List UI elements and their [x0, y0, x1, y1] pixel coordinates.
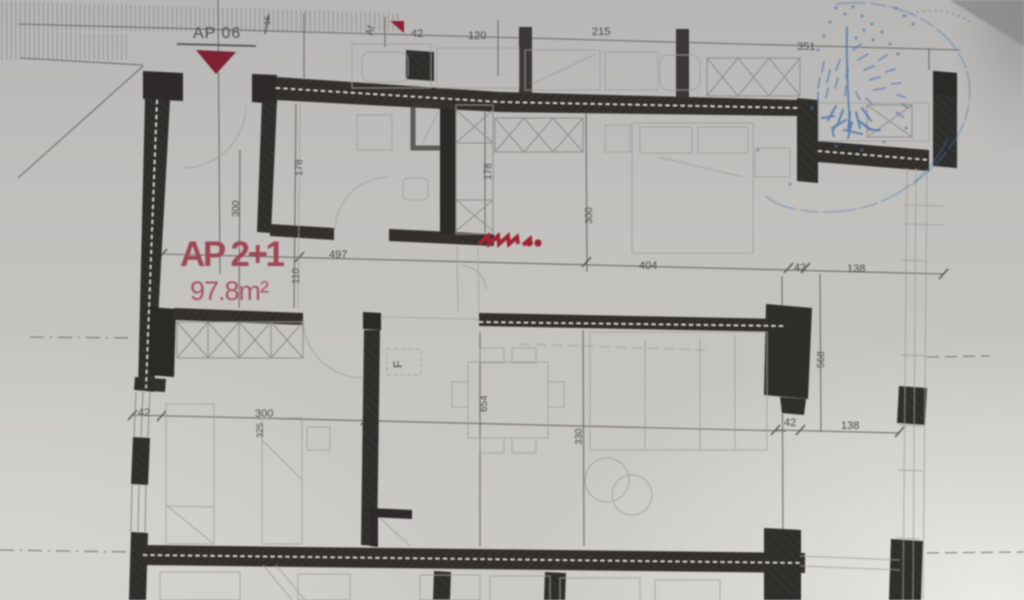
svg-text:138: 138: [847, 263, 865, 275]
svg-text:110: 110: [291, 268, 302, 284]
svg-text:330: 330: [574, 428, 585, 445]
svg-text:16: 16: [263, 16, 272, 25]
svg-text:42: 42: [784, 417, 796, 429]
svg-text:300: 300: [584, 207, 595, 224]
svg-text:568: 568: [816, 351, 827, 368]
svg-text:351: 351: [797, 41, 815, 53]
svg-text:42: 42: [794, 262, 806, 274]
svg-text:178: 178: [483, 163, 494, 180]
svg-text:AP 06: AP 06: [193, 25, 241, 42]
svg-text:215: 215: [592, 26, 610, 38]
svg-text:325: 325: [255, 423, 265, 438]
svg-text:178: 178: [294, 159, 305, 176]
svg-text:300: 300: [231, 200, 242, 217]
svg-text:654: 654: [479, 395, 490, 412]
svg-text:97.8m²: 97.8m²: [190, 276, 269, 306]
svg-text:497: 497: [329, 249, 347, 261]
svg-text:AP 2+1: AP 2+1: [180, 235, 285, 274]
svg-text:404: 404: [639, 260, 657, 272]
svg-text:F: F: [391, 361, 405, 368]
svg-text:138: 138: [841, 420, 859, 432]
svg-text:42: 42: [138, 407, 150, 419]
svg-text:42: 42: [411, 28, 423, 40]
svg-text:120: 120: [468, 30, 486, 42]
svg-text:300: 300: [255, 408, 273, 420]
